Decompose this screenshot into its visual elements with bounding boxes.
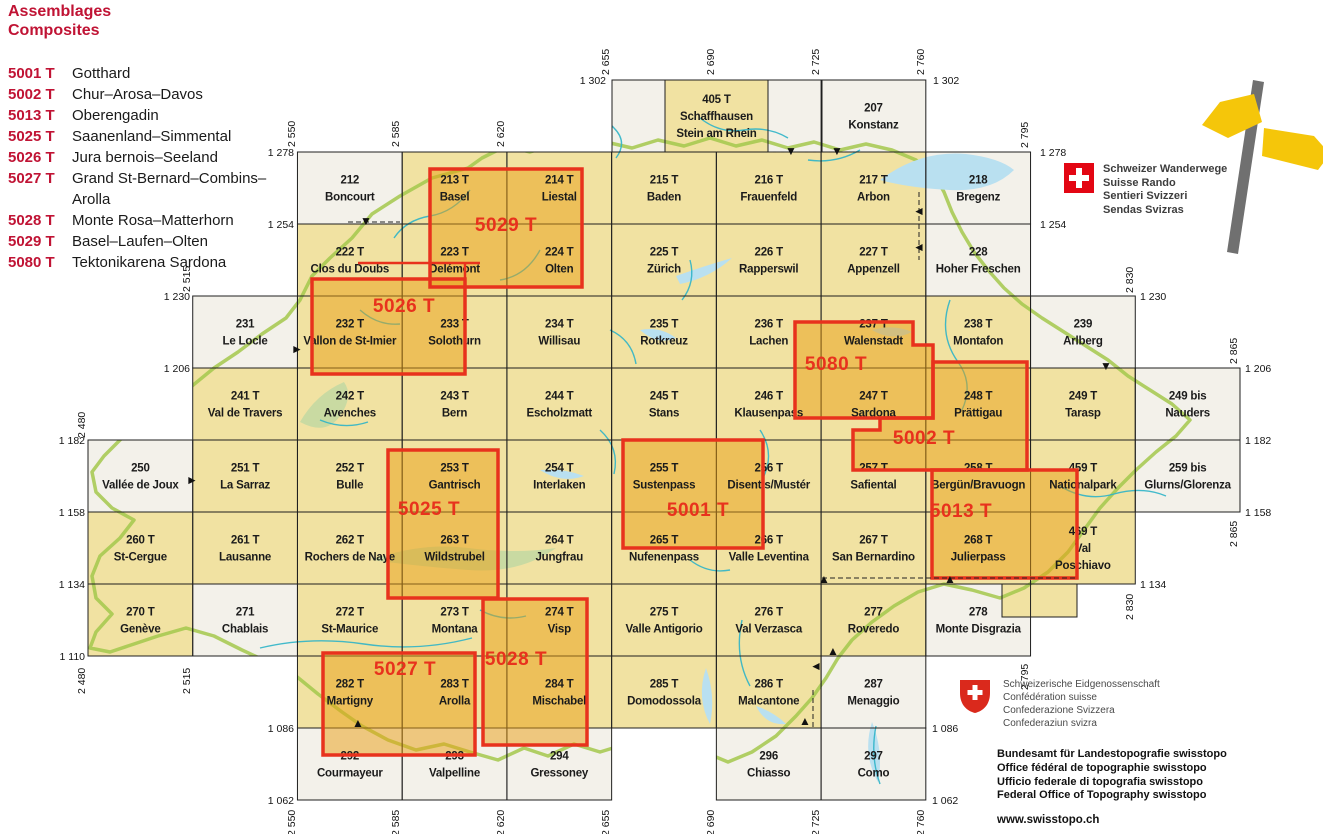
map-cell[interactable]: [1002, 584, 1077, 617]
border-marker: ▼: [785, 144, 797, 158]
map-cell-259bis[interactable]: [1135, 440, 1240, 512]
composite-label: 5027 T: [374, 659, 436, 680]
axis-label: 1 254: [268, 219, 294, 231]
border-marker: ▼: [1100, 359, 1112, 373]
border-marker: ▲: [799, 714, 811, 728]
axis-label: 1 086: [932, 723, 958, 735]
map-cell-216T[interactable]: [716, 152, 821, 224]
axis-label: 2 550: [286, 121, 298, 147]
composite-area-5001T[interactable]: [623, 440, 763, 548]
axis-label: 2 655: [600, 810, 612, 834]
axis-label: 1 062: [932, 795, 958, 807]
map-cell-227T[interactable]: [821, 224, 926, 296]
axis-label: 2 725: [810, 810, 822, 834]
composite-label: 5025 T: [398, 499, 460, 520]
swiss-cross-icon: [1064, 163, 1094, 193]
axis-label: 1 278: [268, 147, 294, 159]
border-marker: ▲: [944, 572, 956, 586]
axis-label: 1 182: [1245, 435, 1271, 447]
axis-label: 2 725: [810, 49, 822, 75]
composite-label: 5001 T: [667, 500, 729, 521]
map-cell-249bis[interactable]: [1135, 368, 1240, 440]
map-cell-241T[interactable]: [193, 368, 298, 440]
map-cell-271[interactable]: [193, 584, 298, 656]
composite-label: 5029 T: [475, 215, 537, 236]
axis-label: 2 795: [1019, 122, 1031, 148]
axis-label: 2 760: [915, 49, 927, 75]
axis-label: 2 515: [181, 266, 193, 292]
map-cell-276T[interactable]: [716, 584, 821, 656]
axis-label: 1 302: [933, 75, 959, 87]
composite-area-5028T[interactable]: [483, 599, 587, 745]
map-cell-207[interactable]: [821, 80, 926, 152]
border-marker: ◄: [913, 204, 925, 218]
swiss-shield-icon: [958, 678, 992, 714]
axis-label: 2 760: [915, 810, 927, 834]
axis-label: 1 302: [580, 75, 606, 87]
confederation-lines: Schweizerische EidgenossenschaftConfédér…: [1003, 678, 1160, 730]
composite-label: 5013 T: [930, 501, 992, 522]
map-cell-244T[interactable]: [507, 368, 612, 440]
composite-label: 5026 T: [373, 296, 435, 317]
map-cell-243T[interactable]: [402, 368, 507, 440]
axis-label: 2 690: [705, 810, 717, 834]
axis-label: 2 865: [1228, 338, 1240, 364]
axis-label: 2 830: [1124, 267, 1136, 293]
axis-label: 2 585: [390, 121, 402, 147]
map-cell-231[interactable]: [193, 296, 298, 368]
axis-label: 1 134: [59, 579, 85, 591]
map-cell-285T[interactable]: [612, 656, 717, 728]
border-marker: ◄: [913, 240, 925, 254]
office-line: Ufficio federale di topografia swisstopo: [997, 776, 1227, 790]
office-line: Bundesamt für Landestopografie swisstopo: [997, 748, 1227, 762]
signpost-icon: [1190, 70, 1323, 265]
axis-label: 1 134: [1140, 579, 1166, 591]
axis-label: 1 206: [1245, 363, 1271, 375]
axis-label: 1 062: [268, 795, 294, 807]
office-line: Office fédéral de topographie swisstopo: [997, 762, 1227, 776]
map-cell-215T[interactable]: [612, 152, 717, 224]
map-cell-245T[interactable]: [612, 368, 717, 440]
axis-label: 2 865: [1228, 521, 1240, 547]
page: Assemblages Composites 5001 TGotthard500…: [0, 0, 1323, 834]
office-line: Federal Office of Topography swisstopo: [997, 789, 1227, 803]
axis-label: 2 620: [495, 121, 507, 147]
composite-label: 5080 T: [805, 354, 867, 375]
axis-label: 2 655: [600, 49, 612, 75]
axis-label: 1 230: [1140, 291, 1166, 303]
axis-label: 1 086: [268, 723, 294, 735]
map-cell-212[interactable]: [297, 152, 402, 224]
map-cell-267T[interactable]: [821, 512, 926, 584]
axis-label: 1 158: [59, 507, 85, 519]
confederation-line: Confederaziun svizra: [1003, 717, 1160, 730]
axis-label: 1 206: [164, 363, 190, 375]
axis-label: 1 278: [1040, 147, 1066, 159]
border-marker: ►: [291, 342, 303, 356]
map-cell-238T[interactable]: [926, 296, 1031, 368]
map-cell-275T[interactable]: [612, 584, 717, 656]
border-marker: ►: [186, 473, 198, 487]
map-cell-260T[interactable]: [88, 512, 193, 584]
axis-label: 2 690: [705, 49, 717, 75]
border-marker: ▼: [360, 214, 372, 228]
axis-label: 2 480: [76, 412, 88, 438]
axis-label: 2 550: [286, 810, 298, 834]
map-cell-264T[interactable]: [507, 512, 612, 584]
map-cell-287[interactable]: [821, 656, 926, 728]
map-cell-234T[interactable]: [507, 296, 612, 368]
axis-label: 2 830: [1124, 594, 1136, 620]
map-cell-226T[interactable]: [716, 224, 821, 296]
map-cell-251T[interactable]: [193, 440, 298, 512]
axis-label: 1 158: [1245, 507, 1271, 519]
confederation-block: Schweizerische EidgenossenschaftConfédér…: [958, 678, 1160, 730]
map-cell-249T[interactable]: [1031, 368, 1136, 440]
border-marker: ▼: [831, 144, 843, 158]
confederation-line: Schweizerische Eidgenossenschaft: [1003, 678, 1160, 691]
composite-label: 5002 T: [893, 428, 955, 449]
map-cell-270T[interactable]: [88, 584, 193, 656]
axis-label: 1 110: [60, 651, 86, 663]
map-cell-239[interactable]: [1031, 296, 1136, 368]
border-marker: ▲: [827, 644, 839, 658]
axis-label: 2 480: [76, 668, 88, 694]
website-link[interactable]: www.swisstopo.ch: [997, 814, 1099, 826]
axis-label: 1 254: [1040, 219, 1066, 231]
map-cell-261T[interactable]: [193, 512, 298, 584]
border-marker: ▲: [352, 716, 364, 730]
border-marker: ▲: [818, 572, 830, 586]
axis-label: 2 620: [495, 810, 507, 834]
office-lines: Bundesamt für Landestopografie swisstopo…: [997, 748, 1227, 803]
composite-label: 5028 T: [485, 649, 547, 670]
border-marker: ◄: [810, 659, 822, 673]
axis-label: 2 515: [181, 668, 193, 694]
confederation-line: Confédération suisse: [1003, 691, 1160, 704]
axis-label: 2 585: [390, 810, 402, 834]
confederation-line: Confederazione Svizzera: [1003, 704, 1160, 717]
map-cell-225T[interactable]: [612, 224, 717, 296]
